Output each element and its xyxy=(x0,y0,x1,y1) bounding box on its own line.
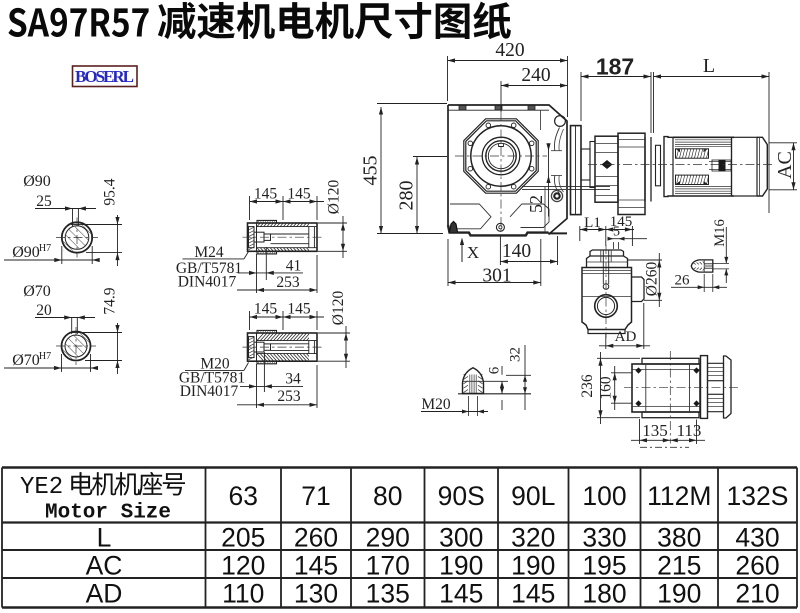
svg-text:180: 180 xyxy=(582,579,626,609)
svg-text:M16: M16 xyxy=(712,219,728,246)
svg-text:215: 215 xyxy=(657,551,701,581)
svg-text:380: 380 xyxy=(657,523,701,553)
svg-text:H7: H7 xyxy=(39,351,51,362)
svg-text:26: 26 xyxy=(675,273,691,289)
svg-text:236: 236 xyxy=(579,374,596,398)
svg-text:320: 320 xyxy=(511,523,555,553)
svg-text:DIN4017: DIN4017 xyxy=(180,383,239,400)
svg-text:300: 300 xyxy=(439,523,483,553)
svg-text:135: 135 xyxy=(642,421,668,440)
svg-text:170: 170 xyxy=(366,551,410,581)
svg-text:AC: AC xyxy=(774,151,796,179)
svg-text:253: 253 xyxy=(276,274,300,291)
svg-text:190: 190 xyxy=(511,551,555,581)
svg-text:145: 145 xyxy=(254,301,278,318)
svg-text:74.9: 74.9 xyxy=(102,287,119,314)
svg-text:41: 41 xyxy=(286,258,302,275)
svg-text:20: 20 xyxy=(36,302,52,319)
svg-text:YE2: YE2 xyxy=(20,474,63,501)
svg-text:260: 260 xyxy=(294,523,338,553)
svg-text:135: 135 xyxy=(366,579,410,609)
svg-text:132S: 132S xyxy=(727,481,789,511)
svg-text:420: 420 xyxy=(495,40,524,61)
svg-text:430: 430 xyxy=(735,523,779,553)
svg-text:25: 25 xyxy=(36,193,52,210)
svg-text:190: 190 xyxy=(657,579,701,609)
svg-text:160: 160 xyxy=(598,376,615,400)
svg-text:113: 113 xyxy=(677,421,702,440)
svg-text:195: 195 xyxy=(582,551,626,581)
svg-text:H7: H7 xyxy=(39,243,51,254)
svg-text:210: 210 xyxy=(735,579,779,609)
svg-text:120: 120 xyxy=(221,551,265,581)
svg-text:301: 301 xyxy=(482,266,511,287)
svg-text:145: 145 xyxy=(439,579,483,609)
svg-text:Ø90: Ø90 xyxy=(12,244,40,261)
svg-text:Ø90: Ø90 xyxy=(23,173,51,190)
svg-text:M20: M20 xyxy=(421,396,451,413)
svg-text:X: X xyxy=(467,243,479,262)
svg-text:34: 34 xyxy=(285,371,301,388)
svg-text:95.4: 95.4 xyxy=(102,178,119,205)
svg-text:6: 6 xyxy=(487,366,503,374)
svg-text:240: 240 xyxy=(521,65,550,86)
svg-text:145: 145 xyxy=(254,186,278,203)
svg-text:52: 52 xyxy=(526,195,546,213)
svg-text:L: L xyxy=(97,523,112,553)
svg-text:AD: AD xyxy=(615,329,637,345)
svg-text:Ø120: Ø120 xyxy=(330,291,347,326)
svg-text:Motor Size: Motor Size xyxy=(45,502,171,525)
svg-text:290: 290 xyxy=(366,523,410,553)
svg-text:253: 253 xyxy=(277,388,301,405)
svg-text:145: 145 xyxy=(511,579,555,609)
svg-text:L: L xyxy=(703,55,715,77)
svg-text:100: 100 xyxy=(582,481,626,511)
svg-text:DIN4017: DIN4017 xyxy=(178,274,237,291)
svg-text:32: 32 xyxy=(508,347,524,362)
svg-text:145: 145 xyxy=(287,301,311,318)
svg-text:63: 63 xyxy=(229,481,258,511)
svg-text:145: 145 xyxy=(294,551,338,581)
svg-text:80: 80 xyxy=(373,481,402,511)
svg-text:Ø70: Ø70 xyxy=(23,283,51,300)
svg-text:110: 110 xyxy=(222,579,264,609)
svg-text:90L: 90L xyxy=(511,481,555,511)
svg-text:AD: AD xyxy=(86,579,123,609)
svg-text:140: 140 xyxy=(502,241,531,262)
svg-text:205: 205 xyxy=(221,523,265,553)
svg-text:145: 145 xyxy=(287,186,311,203)
svg-text:330: 330 xyxy=(582,523,626,553)
svg-text:130: 130 xyxy=(294,579,338,609)
svg-text:260: 260 xyxy=(735,551,779,581)
svg-text:190: 190 xyxy=(439,551,483,581)
svg-text:187: 187 xyxy=(596,54,634,80)
svg-text:Ø120: Ø120 xyxy=(326,180,343,215)
svg-text:AC: AC xyxy=(86,551,123,581)
svg-text:112M: 112M xyxy=(647,481,711,511)
svg-text:455: 455 xyxy=(360,156,382,186)
svg-text:Ø70: Ø70 xyxy=(12,352,40,369)
svg-text:5: 5 xyxy=(613,225,620,240)
svg-text:71: 71 xyxy=(301,481,330,511)
svg-text:280: 280 xyxy=(396,181,418,211)
svg-text:90S: 90S xyxy=(438,481,485,511)
svg-text:BOSERL: BOSERL xyxy=(75,67,134,86)
